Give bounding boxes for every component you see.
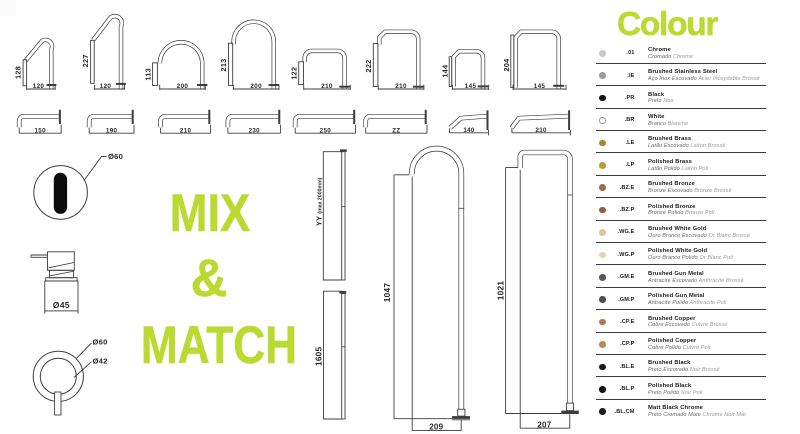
svg-text:210: 210 [321, 83, 333, 90]
svg-text:Ø45: Ø45 [53, 300, 70, 310]
svg-text:222: 222 [364, 60, 373, 73]
svg-text:209: 209 [429, 423, 443, 432]
svg-text:Ø60: Ø60 [93, 338, 108, 347]
svg-text:250: 250 [320, 127, 332, 134]
svg-text:200: 200 [177, 83, 189, 90]
svg-text:230: 230 [249, 127, 261, 134]
svg-text:1047: 1047 [382, 283, 392, 303]
svg-text:210: 210 [180, 127, 192, 134]
svg-text:145: 145 [534, 83, 546, 90]
svg-text:210: 210 [535, 127, 547, 134]
svg-text:210: 210 [395, 83, 407, 90]
svg-text:128: 128 [13, 66, 22, 79]
svg-text:200: 200 [250, 83, 262, 90]
svg-text:227: 227 [81, 54, 90, 67]
svg-text:204: 204 [502, 58, 511, 72]
svg-text:207: 207 [537, 420, 551, 429]
svg-text:120: 120 [100, 83, 112, 90]
svg-text:150: 150 [35, 127, 47, 134]
svg-text:Ø60: Ø60 [108, 152, 123, 161]
svg-text:145: 145 [465, 83, 477, 90]
svg-text:190: 190 [106, 127, 118, 134]
svg-text:ZZ: ZZ [392, 127, 400, 134]
svg-text:144: 144 [440, 64, 449, 78]
svg-text:YY (max 2000mm): YY (max 2000mm) [314, 177, 323, 226]
svg-text:140: 140 [463, 127, 475, 134]
svg-text:1021: 1021 [495, 281, 505, 301]
svg-text:113: 113 [143, 68, 152, 81]
svg-text:Ø42: Ø42 [93, 356, 108, 365]
svg-text:122: 122 [289, 67, 298, 80]
svg-text:120: 120 [33, 83, 45, 90]
svg-text:213: 213 [219, 59, 228, 72]
